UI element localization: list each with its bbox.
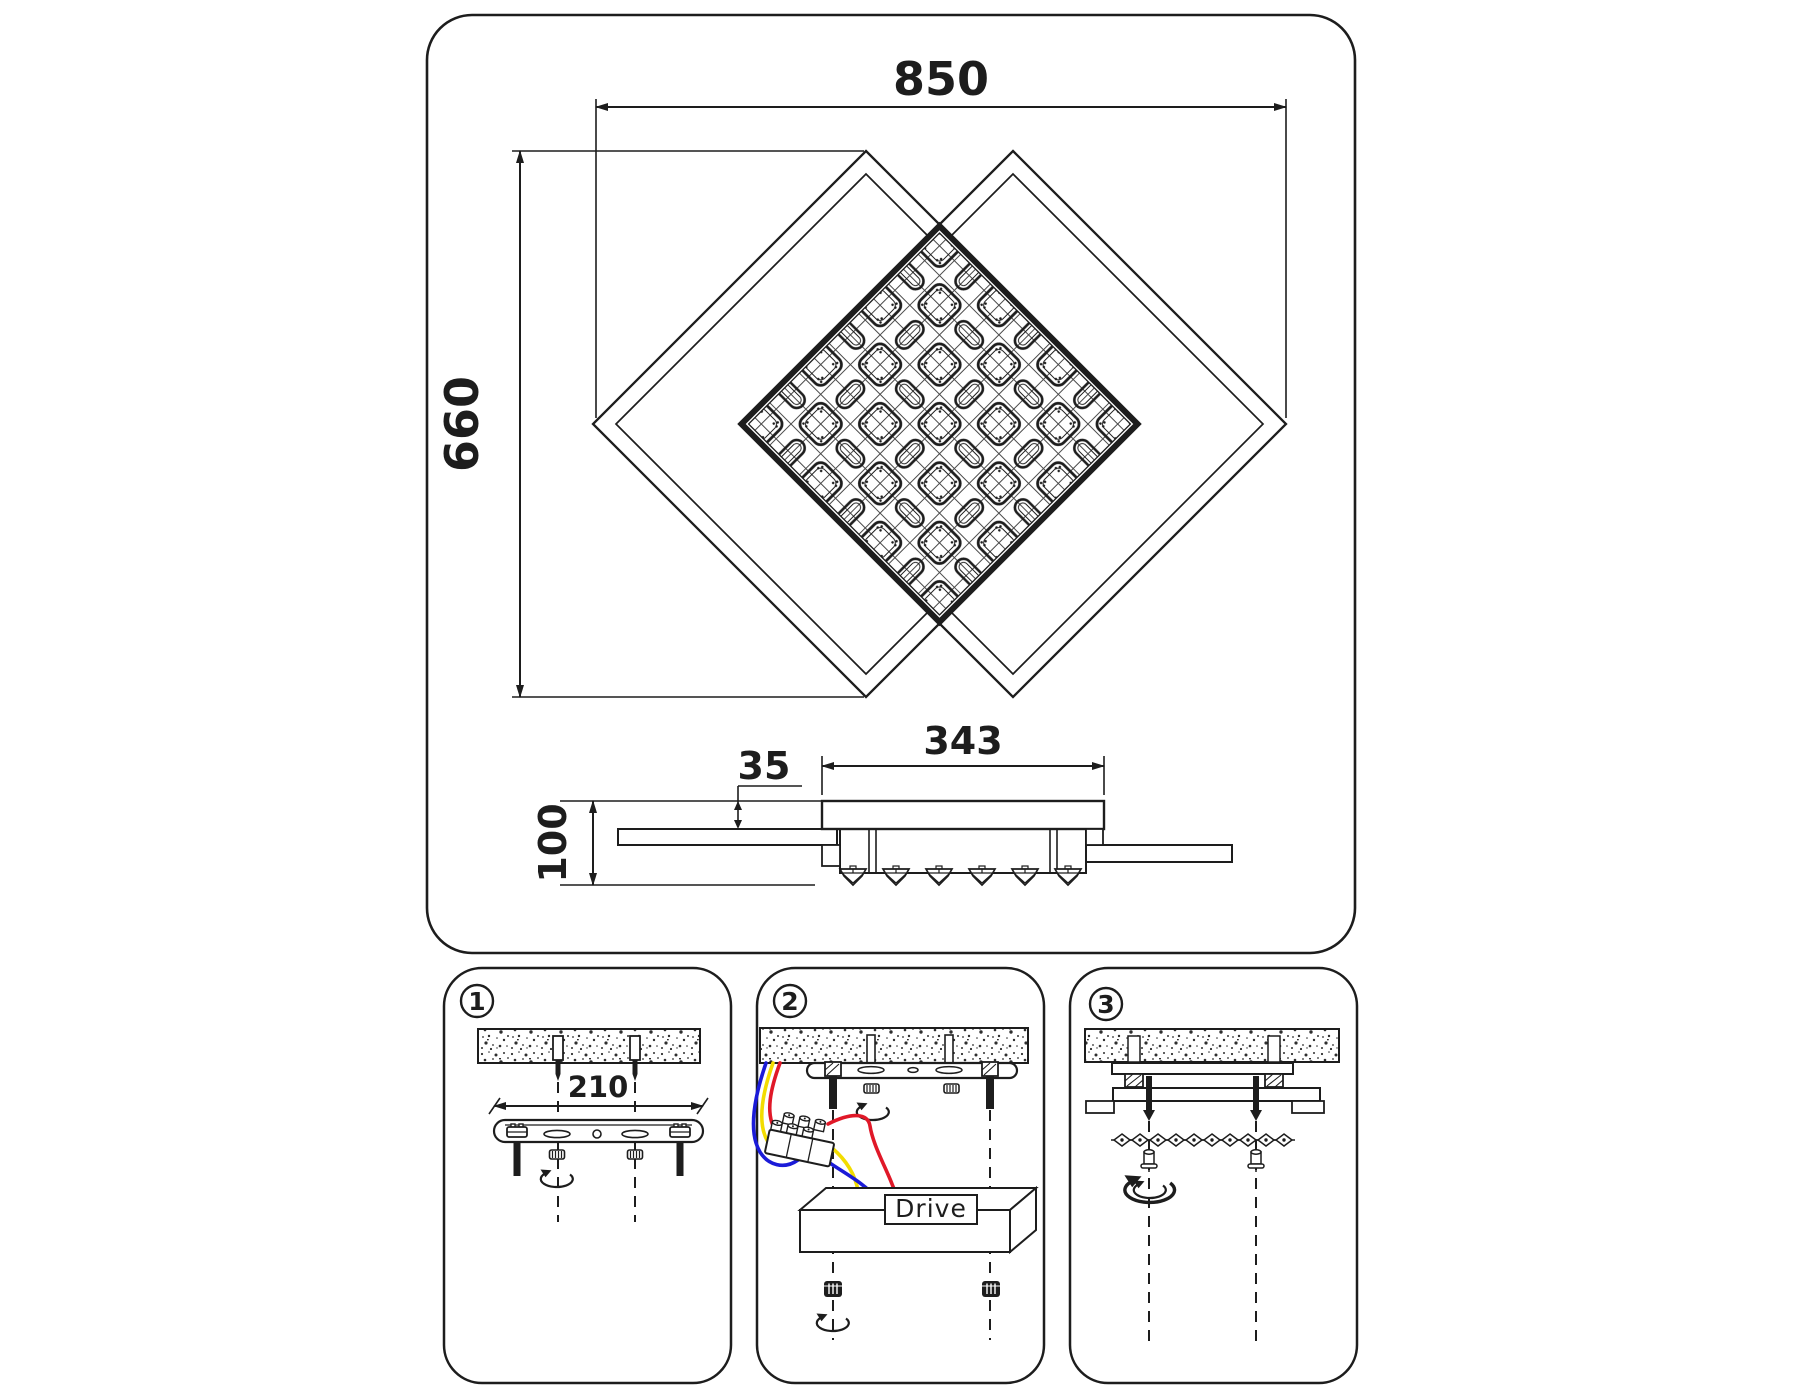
knurled-nut-icon: [944, 1084, 959, 1093]
fixing-nut: [1125, 1074, 1143, 1087]
dim-bracket-length-label: 210: [568, 1070, 629, 1104]
decor-cap-icon: [1141, 1150, 1157, 1172]
drawing-canvas: 850 660: [0, 0, 1800, 1400]
dim-canopy-width-label: 343: [923, 719, 1002, 763]
step-2-number: 2: [781, 987, 798, 1016]
ceiling-band-3: [1085, 1029, 1339, 1062]
step-1-number: 1: [468, 987, 485, 1016]
dim-canopy-offset-label: 35: [738, 744, 791, 788]
knurled-nut-icon: [550, 1150, 565, 1159]
left-tab: [822, 845, 840, 866]
led-driver-box: Drive: [800, 1188, 1036, 1252]
installation-instruction-sheet: 850 660: [0, 0, 1800, 1400]
dim-fixture-height-label: 100: [531, 803, 575, 882]
knurled-nut-icon: [628, 1150, 643, 1159]
ceiling-band-2: [760, 1028, 1028, 1063]
step-3-number: 3: [1097, 990, 1114, 1019]
bracket-slot: [544, 1130, 570, 1137]
fixing-nut: [1265, 1074, 1283, 1087]
frame-stub-left: [1086, 1101, 1114, 1113]
frame-bar: [1113, 1088, 1320, 1101]
knurled-nut-icon: [864, 1084, 879, 1093]
frame-stub-right: [1292, 1101, 1324, 1113]
frame-arm-right: [1086, 845, 1232, 862]
step-panel-3: 3: [1070, 968, 1357, 1383]
blueprint-panel: 850 660: [427, 15, 1355, 953]
hanging-screw: [514, 1142, 521, 1176]
bracket-slot: [622, 1130, 648, 1137]
decor-cap-icon: [1248, 1150, 1264, 1172]
right-tab: [1086, 829, 1103, 845]
ceiling-band-1: [478, 1029, 700, 1063]
driver-label: Drive: [895, 1194, 967, 1223]
step-panel-2: 2: [753, 968, 1044, 1383]
step-panel-1: 1 210: [444, 968, 731, 1383]
cap-nut-icon: [982, 1281, 1000, 1297]
bracket-center-hole: [593, 1130, 601, 1138]
dim-overall-height-label: 660: [435, 376, 489, 472]
cap-nut-icon: [824, 1281, 842, 1297]
dim-overall-width-label: 850: [893, 52, 989, 106]
frame-arm-left: [618, 829, 837, 845]
canopy-plate: [822, 801, 1104, 829]
driver-housing: [840, 829, 1086, 873]
hanging-screw: [677, 1142, 684, 1176]
